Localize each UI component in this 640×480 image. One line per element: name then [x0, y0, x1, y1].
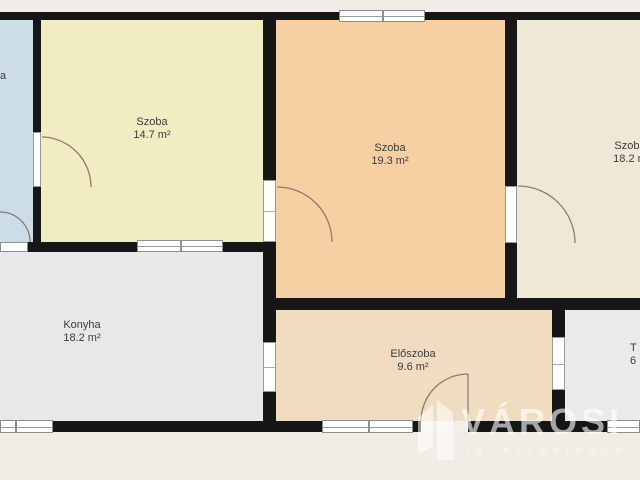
watermark-brand-text: VÁROSI [461, 403, 623, 441]
window-top-szoba2 [339, 10, 425, 22]
label-room-konyha: Konyha 18.2 m² [22, 319, 142, 345]
door-slab-szoba1-szoba2 [263, 180, 276, 242]
label-room-eloszoba: Előszoba 9.6 m² [353, 348, 473, 374]
label-room-szoba1: Szoba 14.7 m² [92, 116, 212, 142]
door-slab-eloszoba-troom [552, 337, 565, 390]
door-slab-konyha-eloszoba [263, 342, 276, 392]
window-szoba1-konyha [137, 240, 223, 252]
label-room-szoba3: Szoba 18.2 m [570, 140, 640, 166]
wall-mid-right [263, 298, 640, 310]
floor-plan-image: a Szoba 14.7 m² Szoba 19.3 m² Szoba 18.2… [0, 0, 640, 480]
label-room-partial-right: T 6 [630, 342, 640, 368]
watermark-subtitle-text: INGATLANIRODA [466, 445, 629, 455]
wall-szoba2-szoba3 [505, 12, 517, 310]
window-eloszoba-bottom [322, 420, 413, 433]
door-slab-blue-yellow [33, 132, 41, 187]
wall-top [0, 12, 640, 20]
window-konyha-bottom [0, 420, 53, 433]
label-room-szoba2: Szoba 19.3 m² [330, 142, 450, 168]
door-slab-partial-left [0, 242, 28, 252]
label-room-partial-left: a [0, 70, 14, 83]
door-slab-szoba2-szoba3 [505, 186, 517, 243]
